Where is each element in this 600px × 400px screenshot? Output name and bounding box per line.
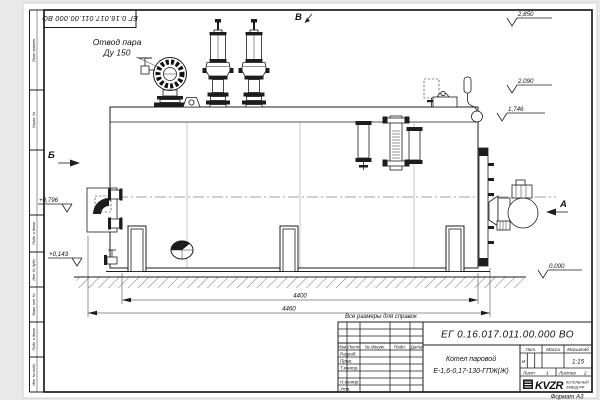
margin-label: Инв. № дубл. bbox=[32, 258, 36, 280]
ground-line bbox=[74, 277, 526, 288]
list-value: 1 bbox=[546, 371, 549, 376]
lit-label: Лит. bbox=[525, 347, 537, 352]
manhole bbox=[171, 241, 193, 259]
kvzr-logo-sub2: ЗАВОД РФ bbox=[566, 386, 584, 390]
col-podp: Подп. bbox=[394, 344, 406, 349]
view-v-label: В bbox=[295, 12, 302, 23]
row-tkontr: Т.контр. bbox=[340, 366, 359, 371]
margin-label: Подп. и дата bbox=[32, 222, 36, 245]
view-a-label: А bbox=[559, 199, 567, 210]
elevation-front-lower-value: +0,143 bbox=[49, 251, 69, 258]
kvzr-logo-text: KVZR bbox=[535, 380, 564, 392]
dimension-4400-value: 4400 bbox=[293, 293, 307, 300]
dimension-4460-value: 4460 bbox=[282, 306, 296, 313]
product-name-line1: Котел паровой bbox=[446, 355, 496, 363]
scale-value: 1:15 bbox=[572, 359, 585, 366]
listov-label: Листов bbox=[558, 371, 576, 376]
steam-outlet-label-line2: Ду 150 bbox=[103, 48, 131, 58]
margin-label: Справ. № bbox=[32, 112, 36, 128]
col-list: Лист bbox=[347, 344, 360, 349]
elevation-drum-value: 1,746 bbox=[508, 106, 524, 113]
format-label: Формат А3 bbox=[551, 395, 584, 400]
steam-outlet-label-line1: Отвод пара bbox=[93, 37, 142, 47]
doc-number: ЕГ 0.16.017.011.00.000 ВО bbox=[441, 330, 574, 341]
drawing-canvas: Перв. примен. Справ. № Подп. и дата Инв.… bbox=[0, 0, 600, 400]
row-nkontr: Н.контр. bbox=[340, 380, 359, 385]
row-prov: Пров. bbox=[340, 359, 352, 364]
product-name-line2: Е-1,6-0,17-130-ГПЖ(Ж) bbox=[433, 368, 508, 375]
col-izm: Изм. bbox=[338, 344, 348, 349]
margin-label: Подп. и дата bbox=[32, 328, 36, 351]
col-data: Дата bbox=[409, 344, 423, 349]
lifting-lug-left bbox=[183, 98, 200, 108]
elevation-ground-value: 0,000 bbox=[549, 263, 565, 270]
corner-stamp-text: ЕГ 0.16.017.011.00.000 ВО bbox=[42, 14, 138, 23]
elevation-top-value: 2,850 bbox=[517, 11, 534, 18]
view-b-label: Б bbox=[48, 150, 55, 161]
margin-label: Инв. № подл. bbox=[32, 363, 36, 385]
elevation-front-upper-value: +0,796 bbox=[39, 197, 59, 204]
kvzr-logo-sub1: КОТЕЛЬНЫЙ bbox=[566, 381, 589, 385]
mass-label: Масса bbox=[546, 347, 560, 352]
reference-note: Все размеры для справок bbox=[345, 314, 418, 320]
list-label: Лист bbox=[522, 371, 535, 376]
margin-label: Взам. инв. № bbox=[32, 293, 36, 315]
row-utv: Утв. bbox=[340, 387, 350, 392]
listov-value: 2 bbox=[583, 371, 587, 376]
row-razrab: Разраб. bbox=[340, 352, 357, 357]
elevation-mid-value: 2,090 bbox=[517, 78, 534, 85]
col-ndoc: № докум. bbox=[365, 344, 385, 349]
margin-label: Перв. примен. bbox=[32, 38, 36, 62]
scale-label: Масштаб bbox=[567, 347, 589, 352]
